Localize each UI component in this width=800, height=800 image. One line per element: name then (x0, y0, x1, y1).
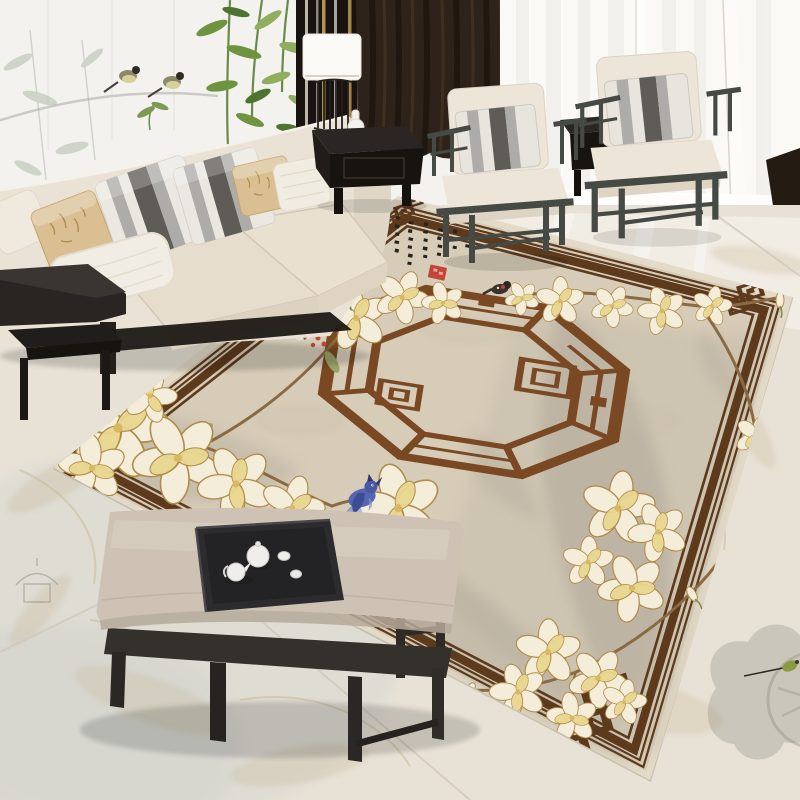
tea-tray (196, 520, 344, 612)
scene-canvas (0, 0, 800, 800)
living-room-rug-photo (0, 0, 800, 800)
